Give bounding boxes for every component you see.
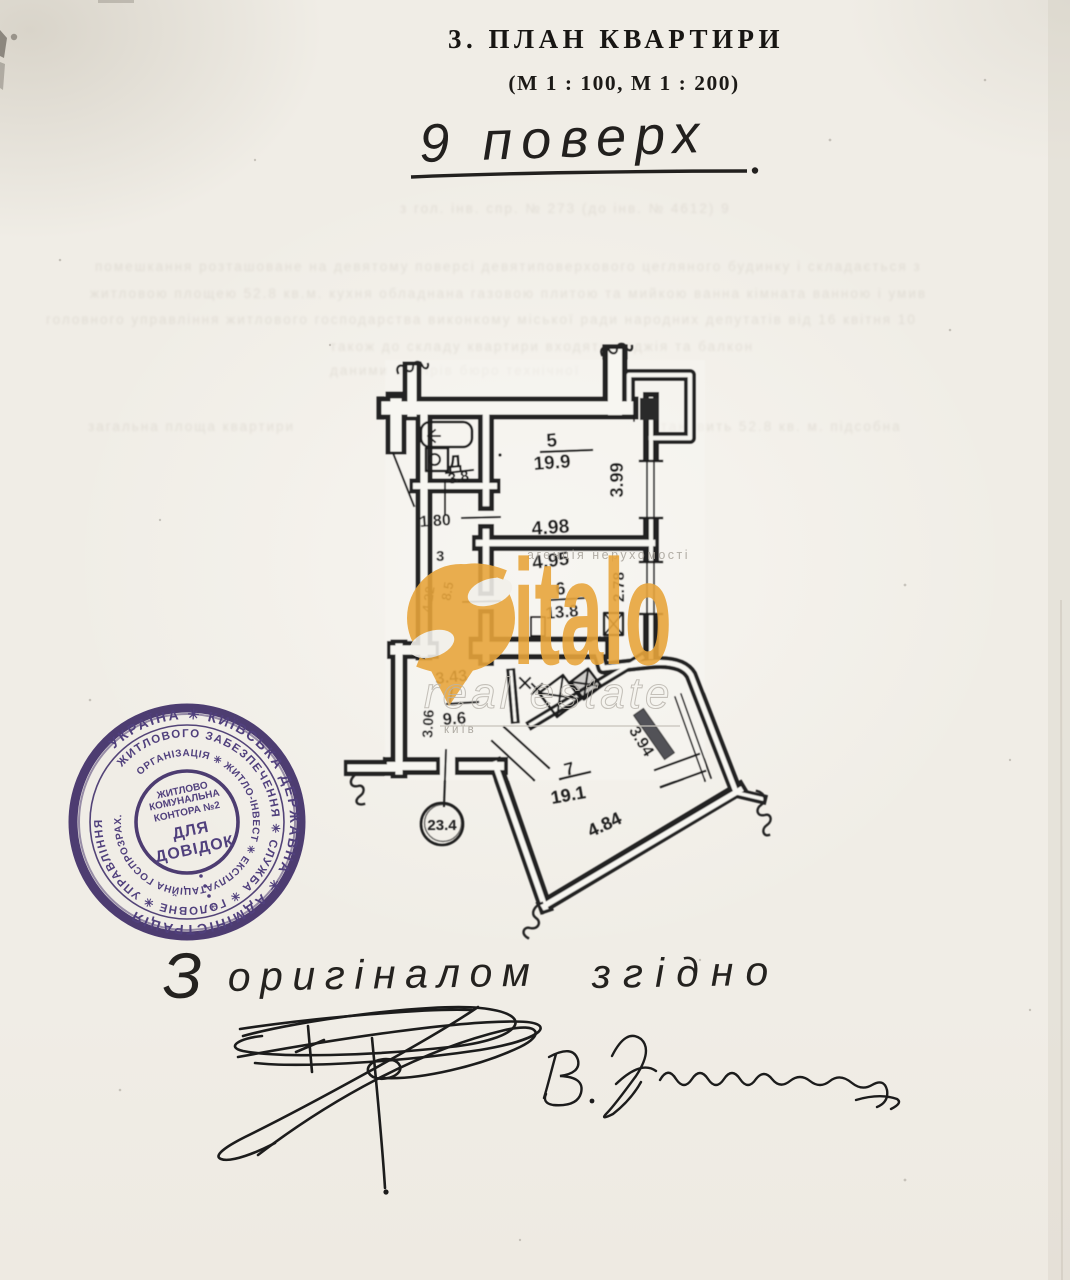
- svg-text:3.8: 3.8: [447, 468, 470, 488]
- svg-text:✳: ✳: [209, 902, 217, 912]
- svg-text:оригіналом: оригіналом: [227, 949, 539, 1000]
- svg-text:ЖИТЛОВОГО ЗАБЕЗПЕЧЕННЯ ✳ СЛУЖБ: ЖИТЛОВОГО ЗАБЕЗПЕЧЕННЯ ✳ СЛУЖБА ✳ ГОЛОВН…: [54, 689, 319, 954]
- svg-text:згідно: згідно: [590, 948, 780, 997]
- svg-text:19.1: 19.1: [549, 782, 587, 808]
- svg-text:помешкання розташоване на девя: помешкання розташоване на девятому повер…: [95, 259, 922, 274]
- svg-text:23.4: 23.4: [427, 817, 457, 834]
- svg-text:3.99: 3.99: [607, 462, 627, 497]
- svg-text:загальна площа квартири: загальна площа квартири: [88, 419, 295, 434]
- svg-text:19.9: 19.9: [533, 451, 571, 475]
- svg-text:київ: київ: [444, 724, 477, 736]
- svg-text:головного управління житлового: головного управління житлового господарс…: [46, 312, 917, 327]
- svg-text:real estate: real estate: [424, 669, 673, 718]
- svg-text:3. ПЛАН КВАРТИРИ: 3. ПЛАН КВАРТИРИ: [448, 24, 784, 54]
- svg-text:житловою площею 52.8 кв.м. кух: житловою площею 52.8 кв.м. кухня обладна…: [90, 286, 927, 301]
- svg-text:3: 3: [436, 548, 444, 565]
- svg-text:також до складу квартири входя: також до складу квартири входять лоджія …: [330, 339, 754, 354]
- svg-text:(М 1 : 100, М 1 : 200): (М 1 : 100, М 1 : 200): [508, 71, 739, 95]
- svg-text:4.84: 4.84: [584, 808, 624, 841]
- svg-text:з гол. інв. спр. № 273 (до і: з гол. інв. спр. № 273 (до інв. № 4612) …: [400, 201, 731, 216]
- svg-text:З: З: [162, 939, 203, 1012]
- svg-text:1.80: 1.80: [419, 512, 451, 531]
- svg-text:9 поверх: 9 поверх: [418, 104, 709, 174]
